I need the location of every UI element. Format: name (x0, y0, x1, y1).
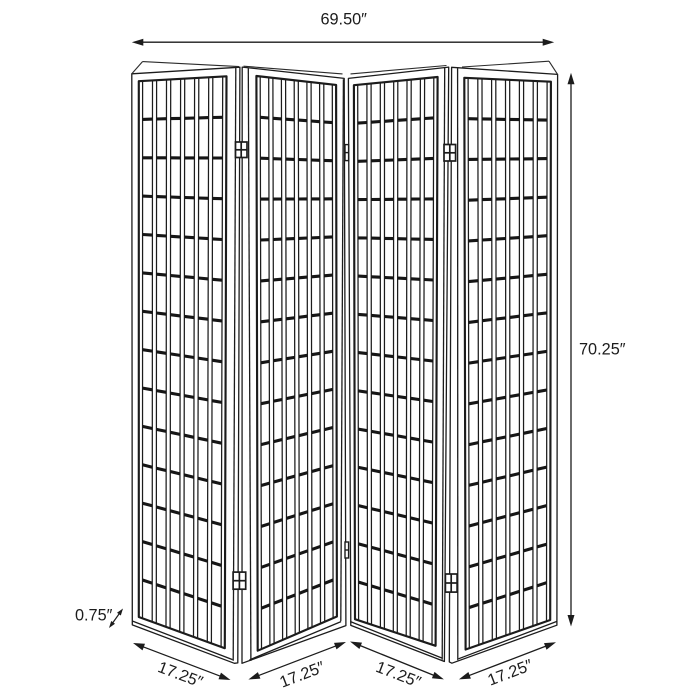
svg-text:70.25″: 70.25″ (579, 341, 626, 359)
svg-text:69.50″: 69.50″ (320, 11, 367, 29)
svg-text:0.75″: 0.75″ (75, 607, 113, 625)
